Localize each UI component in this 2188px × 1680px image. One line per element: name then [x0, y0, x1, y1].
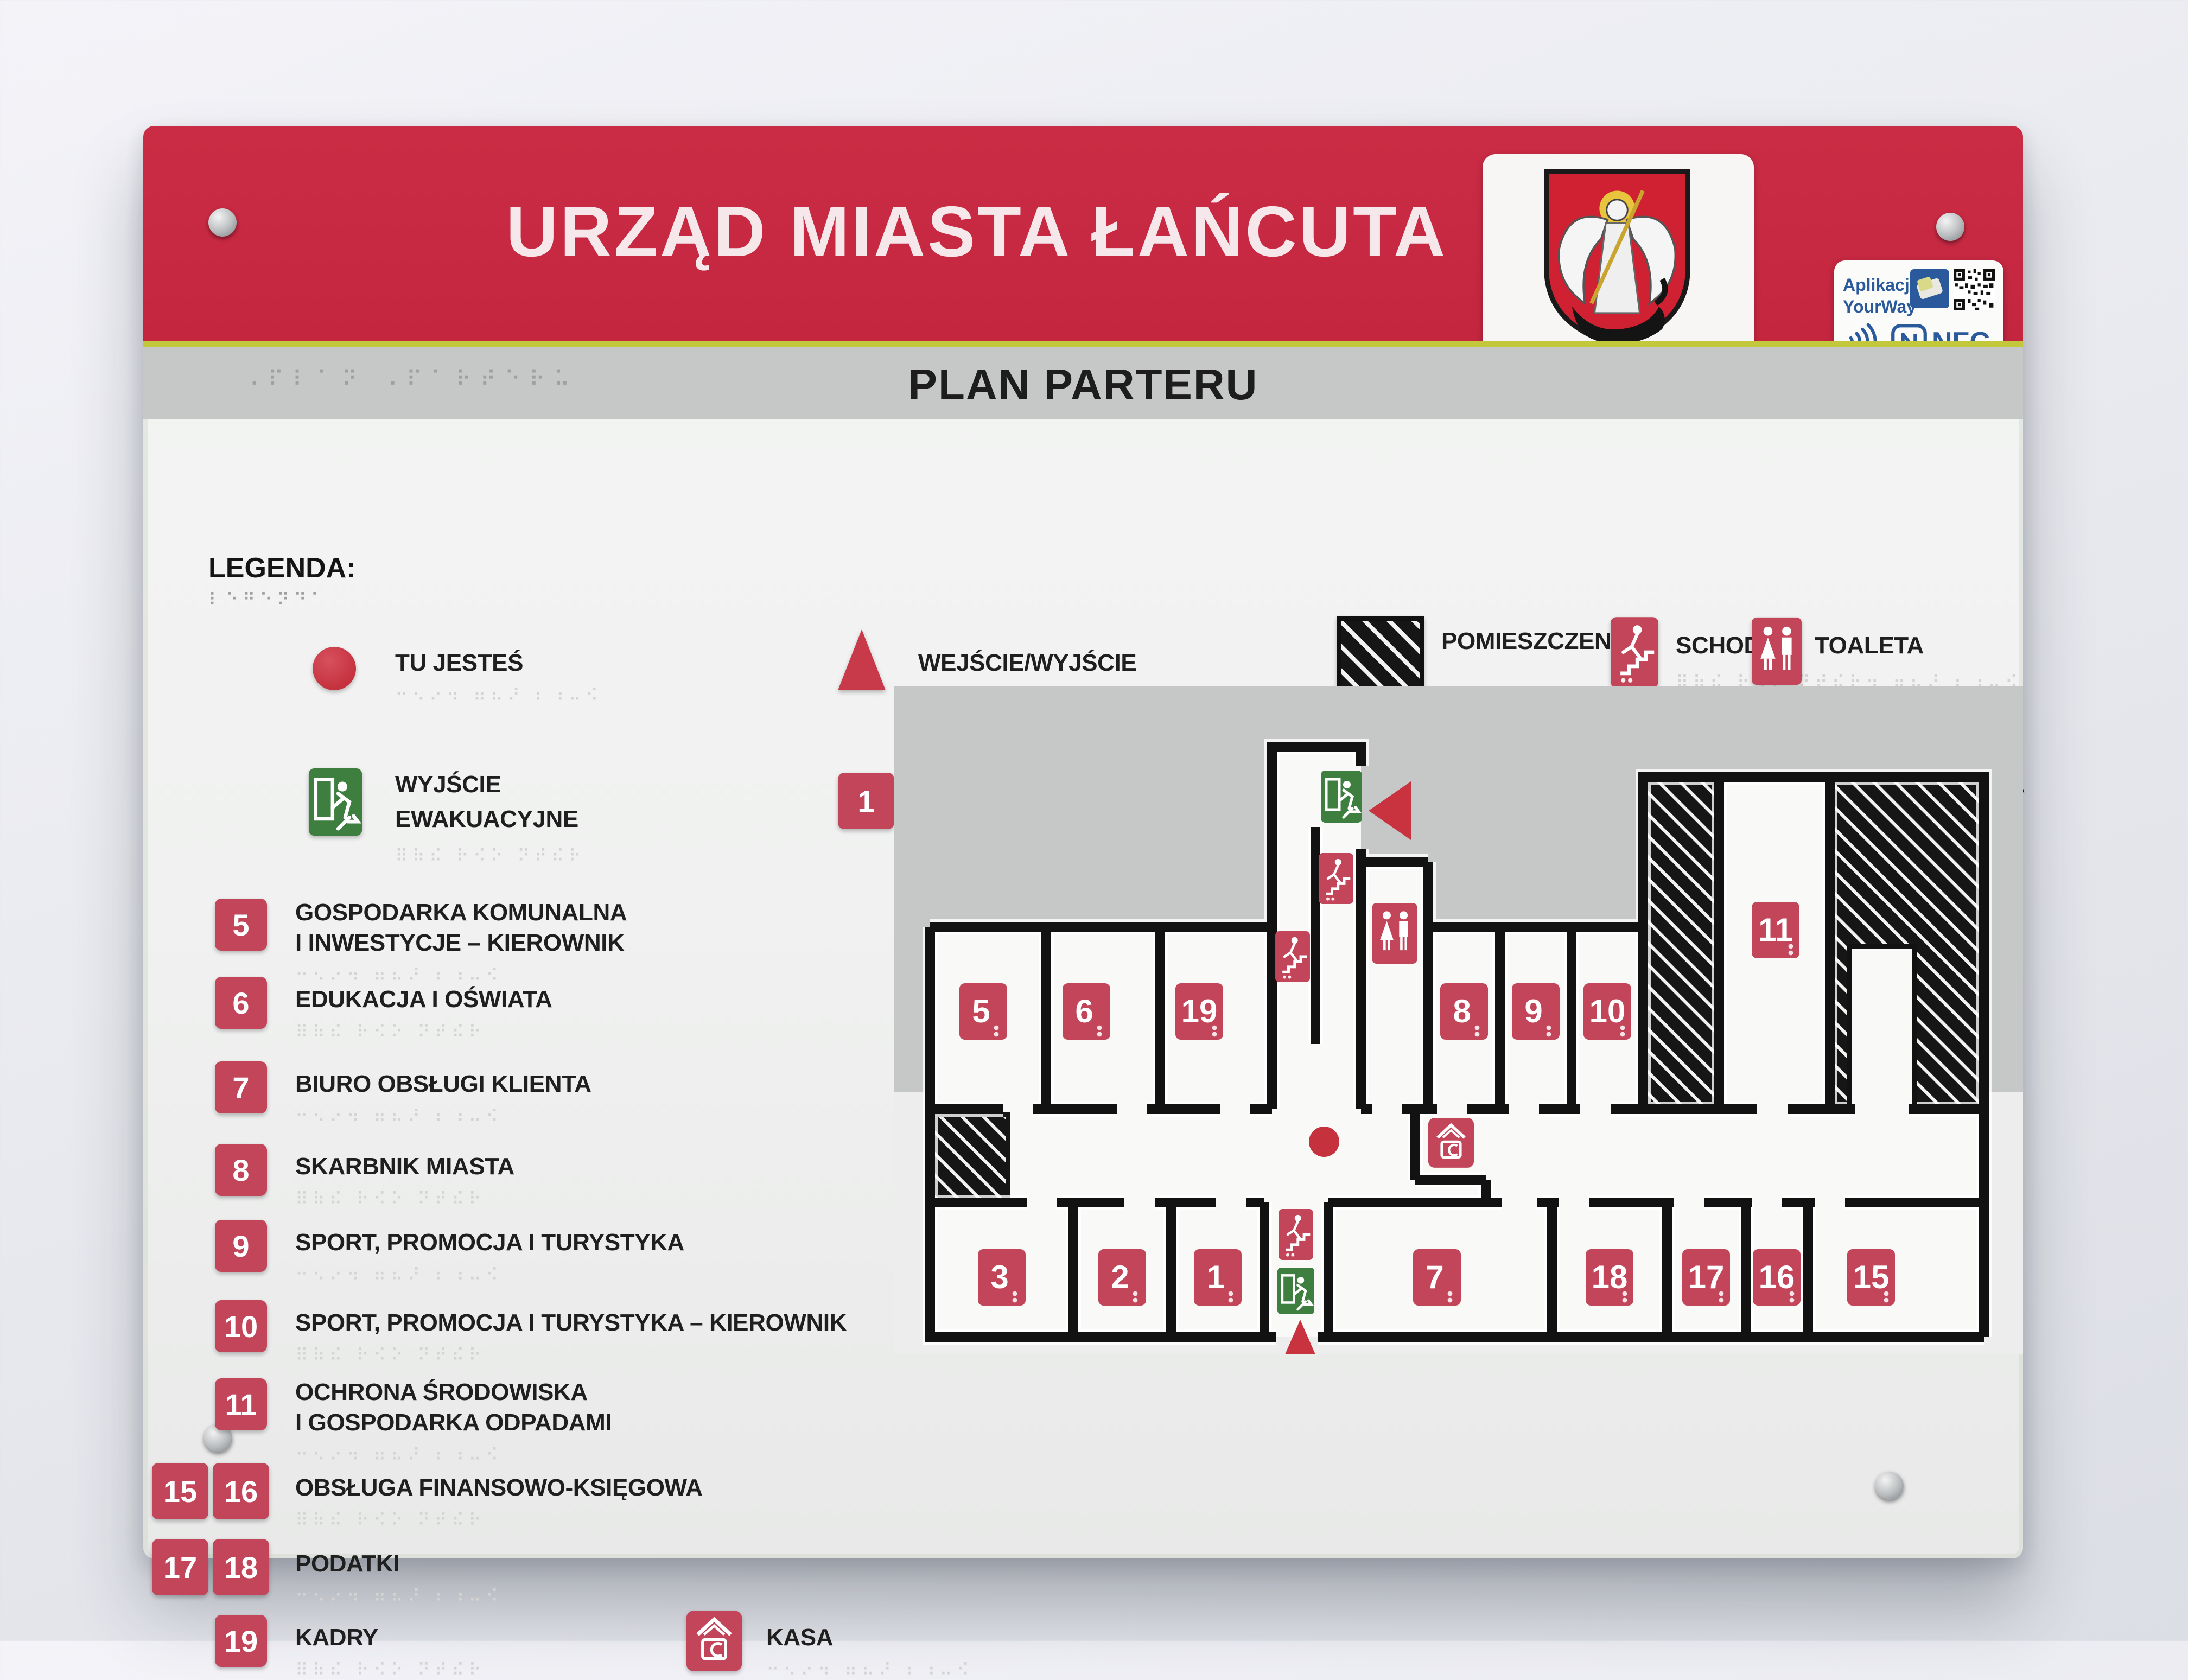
title-band: ⠠⠏⠇⠁⠝ ⠠⠏⠁⠗⠞⠑⠗⠥ PLAN PARTERU: [143, 347, 2023, 419]
legend-label-toaleta: TOALETA: [1815, 634, 1924, 662]
svg-text:18: 18: [1592, 1259, 1628, 1295]
plan-stairs-icon-a: [1275, 931, 1310, 982]
plan-room-10: 10: [1583, 983, 1631, 1040]
room-7-square: 7: [215, 1061, 267, 1113]
room-9-label: SPORT, PROMOCJA I TURYSTYKA: [295, 1231, 684, 1259]
yourway-app-label: Aplikacja YourWay: [1843, 276, 1917, 319]
inaccessible-area-3: [930, 1115, 1008, 1202]
room-18-square: 18: [213, 1539, 269, 1595]
braille-ghost: ⠒⠢⠔⠲ ⠶⠦⠜ ⠆⠰⠤⠪: [295, 1587, 503, 1606]
floor-plan: 5 6 19 8 9 10 11 3 2 1 7 18 17 16 15: [894, 686, 2023, 1354]
room-5-label-2: I INWESTYCJE – KIEROWNIK: [295, 931, 625, 959]
zone-1-square: 1: [838, 773, 894, 829]
kasa-label: KASA: [766, 1626, 833, 1654]
room-17-square: 17: [152, 1539, 208, 1595]
sign-title: URZĄD MIASTA ŁAŃCUTA: [304, 191, 1650, 273]
plan-toilet-icon: [1372, 903, 1417, 964]
plan-room-6: 6: [1063, 983, 1110, 1040]
plan-you-are-here-dot: [1309, 1127, 1339, 1157]
toilet-icon: [1752, 616, 1802, 686]
photo-stage: URZĄD MIASTA ŁAŃCUTA Aplikacja: [0, 0, 2188, 1641]
room-16-square: 16: [213, 1463, 269, 1519]
legend-label-tu-jestes: TU JESTEŚ: [395, 651, 523, 679]
braille-ghost: ⠿⠷⠮ ⠗⠪⠕ ⠝⠞⠮⠗: [395, 847, 586, 866]
room-5-label-1: GOSPODARKA KOMUNALNA: [295, 901, 627, 929]
room-6-label: EDUKACJA I OŚWIATA: [295, 988, 552, 1016]
room-11-square: 11: [215, 1378, 267, 1430]
plan-stairs-icon-bottom: [1279, 1209, 1313, 1260]
braille-ghost: ⠒⠢⠔⠲ ⠶⠦⠜ ⠆⠰⠤⠪: [295, 966, 503, 985]
room-19-label: KADRY: [295, 1626, 378, 1654]
plan-room-1: 1: [1194, 1249, 1242, 1306]
legend-label-pomieszczenia-1: POMIESZCZENIA: [1441, 629, 1635, 658]
room-10-square: 10: [215, 1300, 267, 1352]
room-8-square: 8: [215, 1144, 267, 1196]
kasa-icon: [686, 1611, 742, 1671]
legend-heading: LEGENDA:: [208, 551, 356, 584]
screw-top-right: [1936, 213, 1964, 241]
braille-ghost: ⠒⠢⠔⠲ ⠶⠦⠜ ⠆⠰⠤⠪: [295, 1446, 503, 1465]
braille-ghost: ⠒⠢⠔⠲ ⠶⠦⠜ ⠆⠰⠤⠪: [295, 1107, 503, 1127]
plan-room-18: 18: [1586, 1249, 1633, 1306]
braille-ghost: ⠿⠷⠮ ⠗⠪⠕ ⠝⠞⠮⠗: [295, 1660, 486, 1680]
plan-title: PLAN PARTERU: [758, 362, 1409, 412]
svg-text:17: 17: [1688, 1259, 1725, 1295]
svg-text:5: 5: [972, 993, 990, 1029]
entrance-triangle-icon: [838, 629, 886, 690]
room-19-square: 19: [215, 1615, 267, 1667]
plan-exit-top-icon: [1321, 771, 1362, 823]
yourway-app-icon: [1910, 269, 1949, 308]
room-17-18-label: PODATKI: [295, 1552, 399, 1580]
svg-text:15: 15: [1853, 1259, 1890, 1295]
braille-ghost: ⠿⠷⠮ ⠗⠪⠕ ⠝⠞⠮⠗: [295, 1189, 486, 1209]
braille-ghost: ⠒⠢⠔⠲ ⠶⠦⠜ ⠆⠰⠤⠪: [295, 1265, 503, 1285]
room-8-label: SKARBNIK MIASTA: [295, 1155, 514, 1183]
plan-room-5: 5: [959, 983, 1007, 1040]
plan-room-17: 17: [1682, 1249, 1730, 1306]
room-11-label-1: OCHRONA ŚRODOWISKA: [295, 1380, 588, 1409]
svg-text:2: 2: [1111, 1259, 1129, 1295]
plan-stairs-icon-b: [1319, 853, 1353, 904]
legend-label-wejscie: WEJŚCIE/WYJŚCIE: [918, 651, 1136, 679]
emergency-exit-icon: [308, 768, 362, 836]
svg-text:19: 19: [1181, 993, 1218, 1029]
header-band: URZĄD MIASTA ŁAŃCUTA Aplikacja: [143, 126, 2023, 341]
svg-text:7: 7: [1426, 1259, 1443, 1295]
plan-room-16: 16: [1753, 1249, 1801, 1306]
braille-ghost: ⠿⠷⠮ ⠗⠪⠕ ⠝⠞⠮⠗: [295, 1346, 486, 1365]
braille-title-row: ⠠⠏⠇⠁⠝ ⠠⠏⠁⠗⠞⠑⠗⠥: [243, 369, 578, 393]
legend-heading-braille: ⠇⠑⠛⠑⠝⠙⠁: [208, 590, 328, 610]
braille-ghost: ⠒⠢⠔⠲ ⠶⠦⠜ ⠆⠰⠤⠪: [395, 686, 602, 705]
plan-room-11: 11: [1752, 902, 1799, 958]
braille-ghost: ⠿⠷⠮ ⠗⠪⠕ ⠝⠞⠮⠗: [295, 1511, 486, 1530]
room-6-square: 6: [215, 977, 267, 1029]
plan-kasa-icon: [1428, 1118, 1474, 1168]
plan-room-8: 8: [1440, 983, 1488, 1040]
screw-bottom-right: [1875, 1472, 1904, 1500]
qr-code: [1954, 269, 1995, 310]
stairs-icon: [1611, 616, 1658, 688]
room-7-label: BIURO OBSŁUGI KLIENTA: [295, 1072, 591, 1100]
room-5-square: 5: [215, 899, 267, 951]
svg-text:16: 16: [1759, 1259, 1795, 1295]
svg-text:9: 9: [1524, 993, 1542, 1029]
svg-text:11: 11: [1758, 912, 1792, 948]
room-15-square: 15: [152, 1463, 208, 1519]
plan-room-9: 9: [1512, 983, 1560, 1040]
room-11-label-2: I GOSPODARKA ODPADAMI: [295, 1411, 612, 1439]
plan-room-3: 3: [978, 1249, 1026, 1306]
plan-room-15: 15: [1847, 1249, 1895, 1306]
inaccessible-area-1: [1643, 777, 1719, 1109]
svg-text:3: 3: [990, 1259, 1008, 1295]
svg-text:10: 10: [1589, 993, 1626, 1029]
svg-text:1: 1: [1206, 1259, 1224, 1295]
braille-ghost: ⠒⠢⠔⠲ ⠶⠦⠜ ⠆⠰⠤⠪: [766, 1660, 974, 1680]
coat-of-arms-shield: [1513, 165, 1721, 352]
room-10-label: SPORT, PROMOCJA I TURYSTYKA – KIEROWNIK: [295, 1311, 847, 1339]
legend-label-wyjscie-ewak-2: EWAKUACYJNE: [395, 807, 578, 836]
legend-label-wyjscie-ewak-1: WYJŚCIE: [395, 773, 501, 801]
you-are-here-icon: [313, 647, 356, 690]
plan-room-2: 2: [1098, 1249, 1146, 1306]
room-15-16-label: OBSŁUGA FINANSOWO-KSIĘGOWA: [295, 1476, 703, 1504]
room-9-square: 9: [215, 1220, 267, 1272]
plan-room-19: 19: [1175, 983, 1223, 1040]
svg-text:8: 8: [1453, 993, 1471, 1029]
sign-board: URZĄD MIASTA ŁAŃCUTA Aplikacja: [143, 126, 2023, 1558]
plan-room-7: 7: [1413, 1249, 1461, 1306]
accent-line: [143, 341, 2023, 347]
braille-ghost: ⠿⠷⠮ ⠗⠪⠕ ⠝⠞⠮⠗: [295, 1022, 486, 1042]
plan-exit-bottom-icon: [1277, 1268, 1314, 1314]
screw-top-left: [208, 208, 237, 237]
svg-text:6: 6: [1075, 993, 1093, 1029]
coat-of-arms: [1483, 154, 1754, 362]
